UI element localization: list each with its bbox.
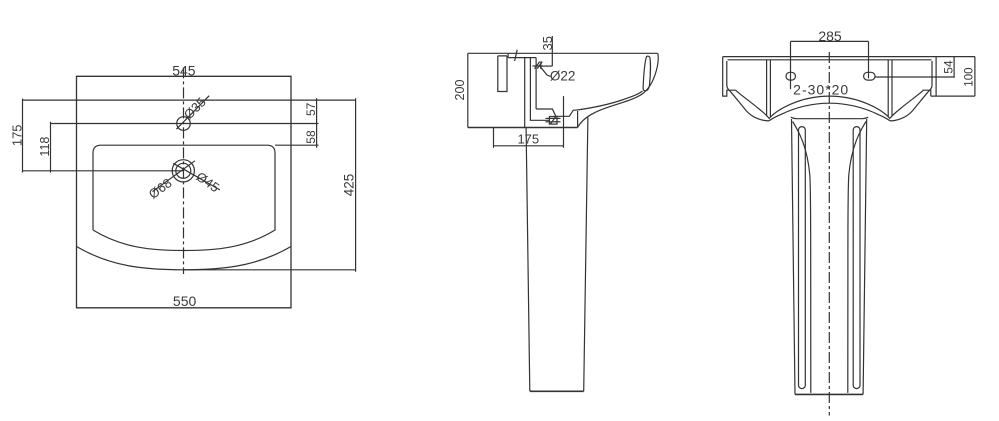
svg-text:175: 175 [10, 124, 25, 146]
svg-text:35: 35 [540, 36, 555, 50]
svg-text:200: 200 [453, 80, 467, 101]
svg-text:58: 58 [304, 130, 318, 144]
svg-text:2-30*20: 2-30*20 [793, 82, 849, 98]
svg-text:285: 285 [818, 28, 842, 44]
svg-text:425: 425 [342, 174, 357, 197]
svg-text:Ø22: Ø22 [550, 69, 576, 84]
svg-text:118: 118 [38, 137, 52, 157]
svg-text:100: 100 [964, 68, 976, 87]
svg-text:175: 175 [517, 132, 539, 147]
svg-text:545: 545 [172, 63, 196, 79]
svg-text:550: 550 [173, 293, 197, 309]
svg-text:57: 57 [304, 102, 318, 116]
svg-text:54: 54 [942, 60, 956, 74]
